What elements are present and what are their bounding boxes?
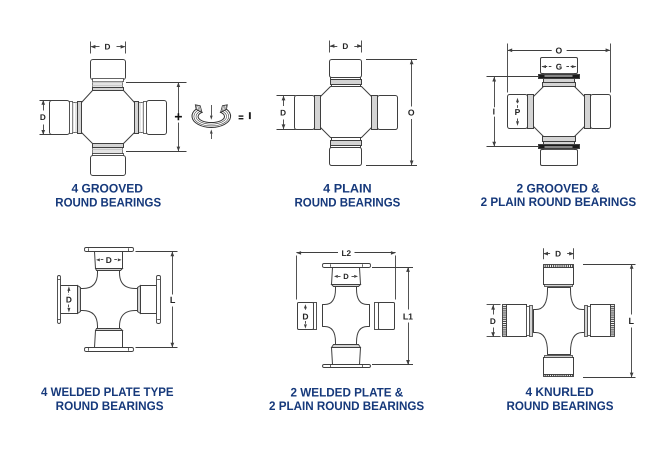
svg-text:2 GROOVED &: 2 GROOVED & xyxy=(517,182,600,196)
svg-text:ROUND BEARINGS: ROUND BEARINGS xyxy=(295,195,401,209)
svg-text:4 PLAIN: 4 PLAIN xyxy=(323,182,371,196)
svg-text:L: L xyxy=(170,295,176,305)
svg-text:D: D xyxy=(106,255,112,265)
svg-text:4 KNURLED: 4 KNURLED xyxy=(526,385,594,399)
svg-text:2 WELDED PLATE &: 2 WELDED PLATE & xyxy=(291,386,404,400)
svg-text:G: G xyxy=(556,63,562,72)
svg-text:4 GROOVED: 4 GROOVED xyxy=(72,182,143,196)
svg-text:4 WELDED PLATE TYPE: 4 WELDED PLATE TYPE xyxy=(41,385,174,399)
svg-text:ROUND BEARINGS: ROUND BEARINGS xyxy=(506,399,613,413)
svg-text:D: D xyxy=(66,295,72,305)
svg-text:L1: L1 xyxy=(403,312,413,322)
svg-text:D: D xyxy=(342,42,348,51)
svg-text:I: I xyxy=(493,107,495,117)
svg-text:2 PLAIN ROUND BEARINGS: 2 PLAIN ROUND BEARINGS xyxy=(269,399,424,413)
svg-text:L2: L2 xyxy=(342,249,352,258)
svg-text:D: D xyxy=(343,272,349,281)
svg-text:D: D xyxy=(105,43,111,52)
svg-text:O: O xyxy=(408,108,415,118)
svg-text:D: D xyxy=(555,250,561,259)
svg-text:2 PLAIN ROUND BEARINGS: 2 PLAIN ROUND BEARINGS xyxy=(481,195,637,209)
svg-text:D: D xyxy=(490,317,496,326)
svg-text:P: P xyxy=(515,107,521,117)
svg-text:ROUND BEARINGS: ROUND BEARINGS xyxy=(55,195,161,209)
svg-text:D: D xyxy=(302,312,308,322)
svg-text:ROUND BEARINGS: ROUND BEARINGS xyxy=(56,399,164,413)
svg-text:O: O xyxy=(556,45,563,55)
svg-text:L: L xyxy=(628,316,634,326)
svg-text:D: D xyxy=(280,108,286,117)
svg-text:D: D xyxy=(40,113,46,122)
